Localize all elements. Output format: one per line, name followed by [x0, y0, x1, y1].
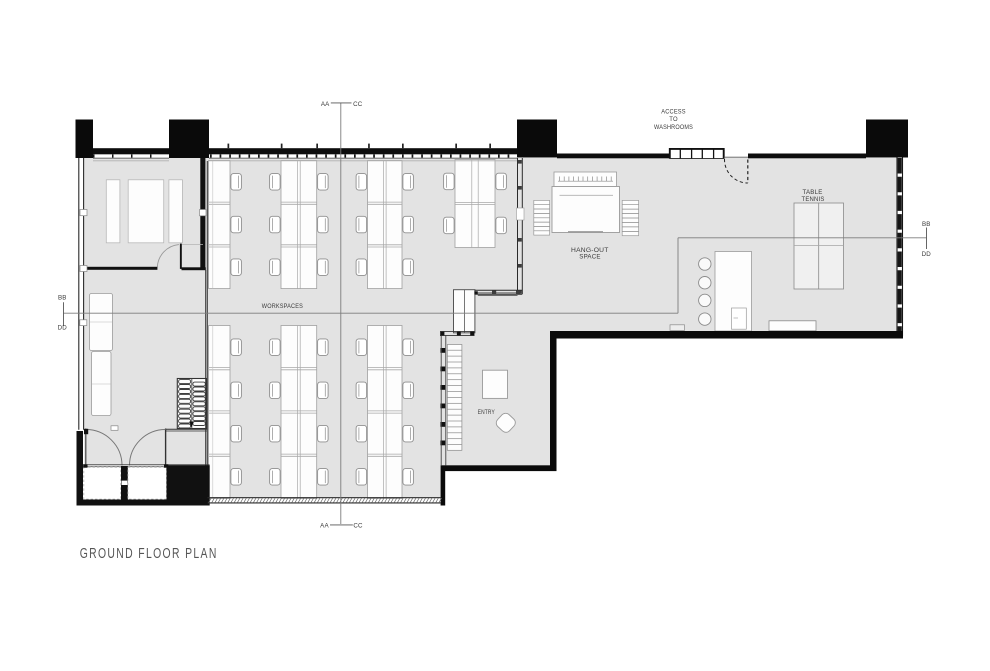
svg-text:WASHROOMS: WASHROOMS [654, 125, 693, 131]
svg-text:AA: AA [321, 101, 330, 108]
svg-text:TO: TO [669, 117, 678, 123]
svg-text:DD: DD [58, 325, 68, 332]
svg-text:BB: BB [922, 221, 931, 228]
svg-text:WORKSPACES: WORKSPACES [262, 303, 303, 310]
svg-text:AA: AA [320, 523, 329, 530]
svg-text:GROUND FLOOR PLAN: GROUND FLOOR PLAN [80, 545, 218, 562]
svg-text:ENTRY: ENTRY [478, 410, 495, 416]
svg-text:BB: BB [58, 295, 67, 302]
svg-text:TABLE: TABLE [803, 190, 823, 196]
svg-text:ACCESS: ACCESS [661, 110, 686, 116]
svg-text:CC: CC [353, 523, 363, 530]
svg-text:SPACE: SPACE [579, 255, 601, 261]
svg-text:TENNIS: TENNIS [802, 197, 825, 203]
svg-text:CC: CC [353, 101, 363, 108]
svg-text:HANG-OUT: HANG-OUT [571, 248, 609, 254]
svg-text:DD: DD [922, 251, 932, 258]
